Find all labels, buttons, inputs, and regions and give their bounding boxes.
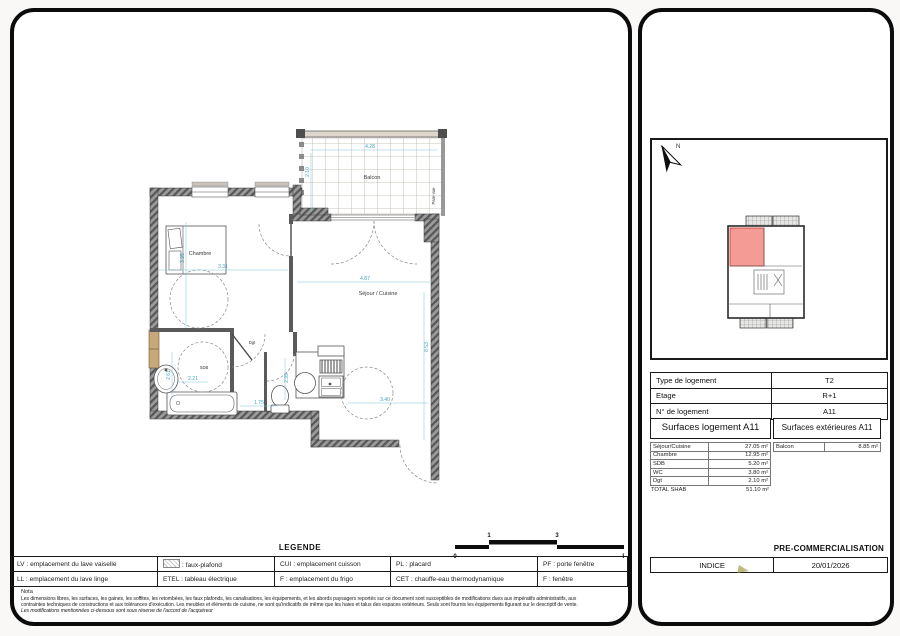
legend-cell: LL : emplacement du lave linge <box>12 572 158 587</box>
label-dgt: Dgt <box>249 340 256 345</box>
label-chambre: Chambre <box>189 251 212 257</box>
bed-icon <box>166 226 226 274</box>
table-row: INDICE 20/01/2026 <box>651 558 888 573</box>
dim-chambre-width: 3.31 <box>218 264 228 270</box>
key-plan-box: N <box>650 138 888 360</box>
surfaces-title: Surfaces logement A11 <box>650 418 771 439</box>
surface-label: Dgt <box>651 477 709 486</box>
info-value: A11 <box>771 404 887 420</box>
nota-line: Les modifications mentionnées ci-dessous… <box>21 608 627 614</box>
legend-cell: : faux-plafond <box>158 557 275 572</box>
legend-table: LV : emplacement du lave vaiselle : faux… <box>11 556 628 587</box>
total-value: 51.10 m² <box>746 487 769 493</box>
hob-icon <box>295 373 316 394</box>
info-value: R+1 <box>771 388 887 404</box>
surface-value: 3.80 m² <box>708 468 770 477</box>
nota-block: Nota Les dimensions libres, les surfaces… <box>21 589 627 615</box>
surface-value: 8.85 m² <box>825 443 881 452</box>
bathtub-icon <box>167 392 237 415</box>
dim-wc-width: 1.75 <box>254 400 264 406</box>
dim-balcon-depth: 2.10 <box>305 167 311 177</box>
dim-kitchen-width: 3.40 <box>380 397 390 403</box>
legend-row: LL : emplacement du lave linge ETEL : ta… <box>12 572 628 587</box>
nota-title: Nota <box>21 589 627 595</box>
label-sejour: Séjour / Cuisine <box>359 291 398 297</box>
cursor-artifact <box>737 565 749 575</box>
surfaces-ext-table: Surfaces extérieures A11 Balcon 8.85 m² <box>773 418 881 452</box>
surface-value: 12.95 m² <box>708 451 770 460</box>
door-leaves <box>232 224 291 360</box>
surface-label: Balcon <box>774 443 825 452</box>
scale-tick-3: 3 <box>555 533 559 539</box>
legend-cell: ETEL : tableau électrique <box>158 572 275 587</box>
total-label: TOTAL SHAB <box>651 487 686 493</box>
legend-cell: F : fenêtre <box>538 572 628 587</box>
legend-cell: LV : emplacement du lave vaiselle <box>12 557 158 572</box>
indice-table: INDICE 20/01/2026 <box>650 557 888 573</box>
pare-vue-screen <box>441 138 445 216</box>
kitchen-counter <box>295 346 345 398</box>
indice-date: 20/01/2026 <box>774 558 888 573</box>
legend-text: CET : chauffe-eau thermodynamique <box>396 576 504 583</box>
indice-label: INDICE <box>651 558 774 573</box>
label-sdb: SDB <box>200 365 209 370</box>
legend-text: ETEL : tableau électrique <box>163 576 237 583</box>
legend-text: LL : emplacement du lave linge <box>17 576 108 583</box>
unit-info-table: Type de logement T2 Etage R+1 N° de loge… <box>650 372 888 420</box>
label-balcon: Balcon <box>364 175 381 181</box>
north-label: N <box>676 144 680 150</box>
dim-sdb-width: 2.21 <box>188 376 198 382</box>
table-row: SDB 5.20 m² <box>651 460 771 469</box>
info-value: T2 <box>771 373 887 389</box>
legend-cell: PL : placard <box>391 557 538 572</box>
surface-label: SDB <box>651 460 709 469</box>
legend-text: F : emplacement du frigo <box>280 576 353 583</box>
legend-text: PL : placard <box>396 561 431 568</box>
legend-row: LV : emplacement du lave vaiselle : faux… <box>12 557 628 572</box>
dim-sejour-height: 8.53 <box>424 342 430 352</box>
balcony <box>296 129 447 216</box>
surface-value: 2.10 m² <box>708 477 770 486</box>
floor-plan-drawing: 3.31 3.95 4.87 8.53 4.28 2.10 2.61 2.21 … <box>14 12 624 616</box>
table-row: Type de logement T2 <box>651 373 888 389</box>
legend-text: CUI : emplacement cuisson <box>280 561 361 568</box>
surfaces-table: Surfaces logement A11 Séjour/Cuisine 27.… <box>650 418 771 495</box>
surface-label: WC <box>651 468 709 477</box>
dim-sdb-height: 2.61 <box>166 370 172 380</box>
legend-text: : faux-plafond <box>182 562 222 569</box>
faux-plafond-swatch-icon <box>163 559 180 568</box>
surface-label: Séjour/Cuisine <box>651 443 709 452</box>
dim-balcon-width: 4.28 <box>365 144 375 150</box>
legend-text: F : fenêtre <box>543 576 573 583</box>
table-row: Chambre 12.95 m² <box>651 451 771 460</box>
legend-cell: PF : porte fenêtre <box>538 557 628 572</box>
table-row: Balcon 8.85 m² <box>774 443 881 452</box>
key-plan-drawing: N <box>652 140 886 358</box>
floor-plan-page: 3.31 3.95 4.87 8.53 4.28 2.10 2.61 2.21 … <box>10 8 632 626</box>
legend-cell: F : emplacement du frigo <box>275 572 391 587</box>
table-row: N° de logement A11 <box>651 404 888 420</box>
dim-sejour-width: 4.87 <box>360 276 370 282</box>
surface-value: 5.20 m² <box>708 460 770 469</box>
dim-chambre-height: 3.95 <box>180 253 186 263</box>
legend-text: LV : emplacement du lave vaiselle <box>17 561 117 568</box>
legend-text: PF : porte fenêtre <box>543 561 594 568</box>
info-label: Etage <box>651 388 772 404</box>
surface-value: 27.05 m² <box>708 443 770 452</box>
info-label: N° de logement <box>651 404 772 420</box>
status-text: PRE-COMMERCIALISATION <box>774 544 884 553</box>
surfaces-total-row: TOTAL SHAB 51.10 m² <box>650 486 771 495</box>
legend-cell: CET : chauffe-eau thermodynamique <box>391 572 538 587</box>
balcony-railing <box>300 131 446 137</box>
plan-sheet: 3.31 3.95 4.87 8.53 4.28 2.10 2.61 2.21 … <box>0 0 900 636</box>
dim-wc-height: 2.99 <box>284 373 290 383</box>
legend-title: LEGENDE <box>200 543 400 552</box>
scale-tick-1: 1 <box>487 533 491 539</box>
table-row: Séjour/Cuisine 27.05 m² <box>651 443 771 452</box>
table-row: Etage R+1 <box>651 388 888 404</box>
table-row: WC 3.80 m² <box>651 468 771 477</box>
surfaces-ext-title: Surfaces extérieures A11 <box>773 418 881 439</box>
legend-cell: CUI : emplacement cuisson <box>275 557 391 572</box>
label-pare-vue: Pare-vue <box>431 187 436 205</box>
key-plan-building <box>728 216 804 328</box>
toilet-icon <box>271 386 289 414</box>
surface-label: Chambre <box>651 451 709 460</box>
highlighted-unit <box>730 228 764 266</box>
info-page: N <box>638 8 894 626</box>
info-label: Type de logement <box>651 373 772 389</box>
table-row: Dgt 2.10 m² <box>651 477 771 486</box>
